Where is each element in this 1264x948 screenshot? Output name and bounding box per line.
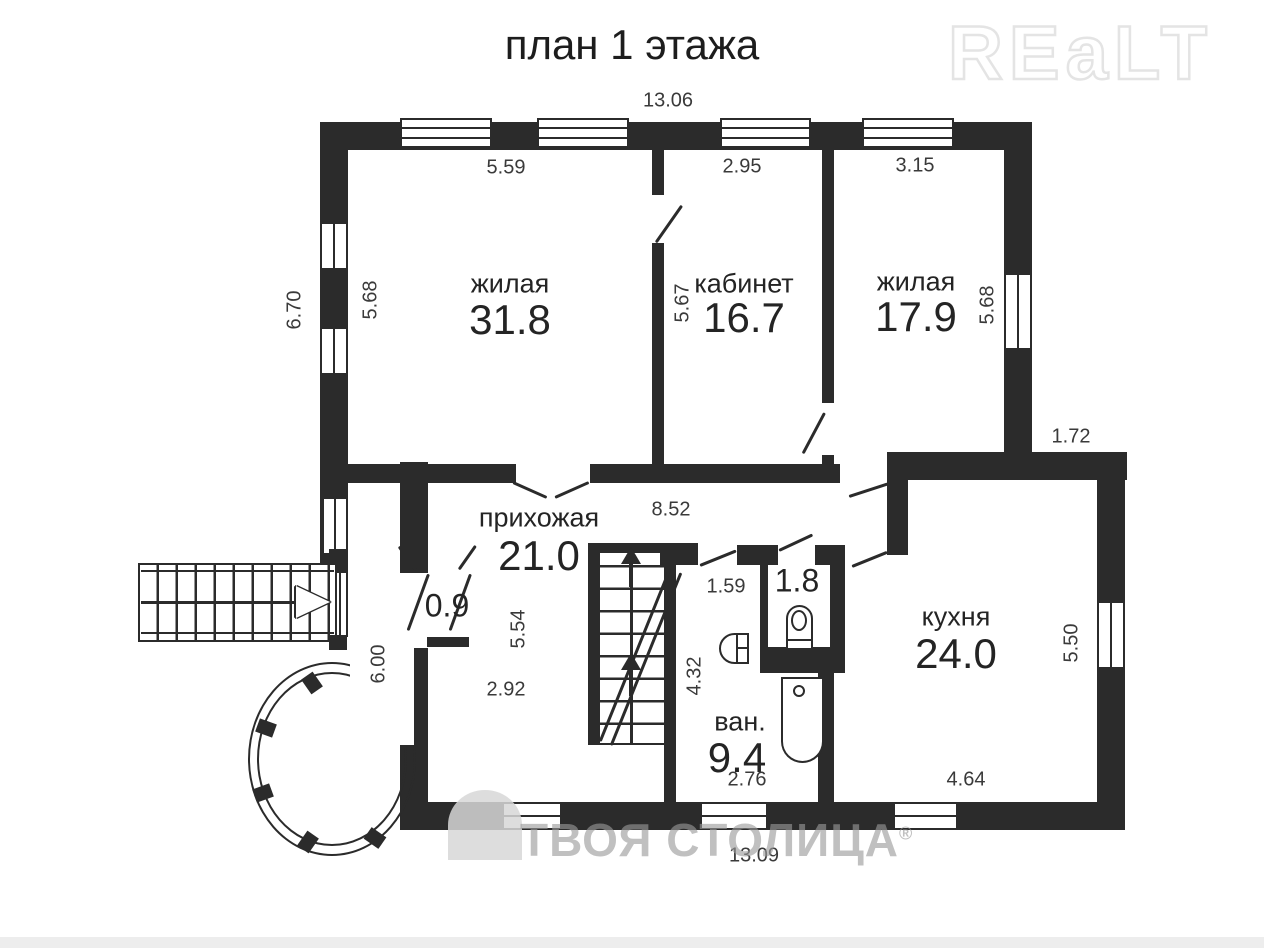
wall	[590, 464, 840, 483]
window	[320, 327, 348, 375]
toilet-bowl-icon	[781, 700, 824, 763]
room-wc-area: 1.8	[775, 563, 819, 600]
room-tambour-area: 0.9	[425, 588, 469, 625]
door-swing	[849, 482, 889, 498]
wall	[652, 243, 664, 464]
dim-bath-door: 1.59	[707, 576, 746, 599]
dim-hall-width: 8.52	[652, 499, 691, 522]
dim-cabinet-width: 2.95	[723, 156, 762, 179]
dim-bath-height: 4.32	[684, 657, 707, 696]
window	[1097, 601, 1125, 669]
dim-step-width: 1.72	[1052, 426, 1091, 449]
bottom-strip	[0, 937, 1264, 948]
dim-living2-width: 3.15	[896, 155, 935, 178]
wall	[737, 545, 778, 565]
wall	[652, 150, 664, 195]
porch-rail-line	[339, 571, 341, 637]
wall	[887, 480, 908, 555]
door-swing	[778, 534, 813, 552]
dim-top-width: 13.06	[643, 90, 693, 113]
room-hall-area: 21.0	[498, 532, 580, 580]
room-cabinet-area: 16.7	[703, 294, 785, 342]
wall	[830, 545, 845, 655]
porch-post	[329, 549, 347, 564]
wc-toilet-base-icon	[786, 639, 813, 650]
room-bath-name: ван.	[714, 707, 765, 738]
wall	[822, 150, 834, 403]
dim-living1-width: 5.59	[487, 157, 526, 180]
wall	[320, 464, 516, 483]
stair-direction-arrow-icon	[296, 586, 330, 618]
window	[720, 118, 811, 148]
stair-direction-line	[141, 601, 321, 604]
window	[1004, 273, 1032, 350]
wall	[588, 543, 600, 745]
room-kitchen-area: 24.0	[915, 630, 997, 678]
realt-logo: REaLT	[948, 10, 1213, 97]
room-kitchen-name: кухня	[922, 602, 991, 633]
wall	[427, 637, 469, 647]
dim-bath-width: 2.76	[728, 769, 767, 792]
watermark-house-icon	[448, 790, 522, 860]
floor-plan: план 1 этажа REaLT	[0, 0, 1264, 948]
wall	[760, 647, 845, 673]
wall	[822, 455, 834, 483]
dim-left-lower: 6.00	[368, 645, 391, 684]
sink-detail	[736, 647, 747, 649]
door-swing	[802, 412, 826, 454]
window	[537, 118, 629, 148]
dim-kitchen-height: 5.50	[1061, 624, 1084, 663]
window	[400, 118, 492, 148]
door-swing	[699, 549, 736, 566]
porch-step-edge	[141, 570, 334, 572]
door-swing	[851, 551, 887, 568]
dim-hall-lower-width: 2.92	[487, 679, 526, 702]
watermark: ТВОЯ СТОЛИЦА®	[520, 813, 913, 867]
door-swing	[512, 481, 547, 499]
wc-toilet-bowl-icon	[791, 610, 807, 631]
door-swing	[554, 481, 589, 499]
room-hall-name: прихожая	[479, 503, 599, 534]
watermark-reg: ®	[899, 824, 913, 844]
wall	[760, 565, 768, 647]
dim-left-outer: 6.70	[284, 291, 307, 330]
window	[862, 118, 954, 148]
watermark-text: ТВОЯ СТОЛИЦА	[520, 814, 899, 866]
door-swing	[655, 205, 683, 244]
window	[320, 222, 348, 270]
dim-living1-height: 5.68	[360, 281, 383, 320]
room-living1-area: 31.8	[469, 296, 551, 344]
wall	[676, 543, 698, 557]
dim-hall-height: 5.54	[508, 610, 531, 649]
dim-cabinet-height: 5.67	[672, 284, 695, 323]
wall	[664, 543, 676, 803]
room-living1-name: жилая	[471, 269, 550, 300]
stair-arrow-stem	[629, 562, 633, 587]
dim-kitchen-width: 4.64	[947, 769, 986, 792]
porch-step-edge	[141, 632, 334, 634]
porch-rail-line	[346, 571, 348, 637]
page-title: план 1 этажа	[505, 21, 760, 69]
room-living2-area: 17.9	[875, 293, 957, 341]
window	[322, 497, 348, 555]
door-swing	[458, 545, 477, 570]
porch-post	[329, 635, 347, 650]
dim-living2-height: 5.68	[977, 286, 1000, 325]
wall	[887, 452, 1127, 480]
toilet-button-icon	[793, 685, 805, 697]
